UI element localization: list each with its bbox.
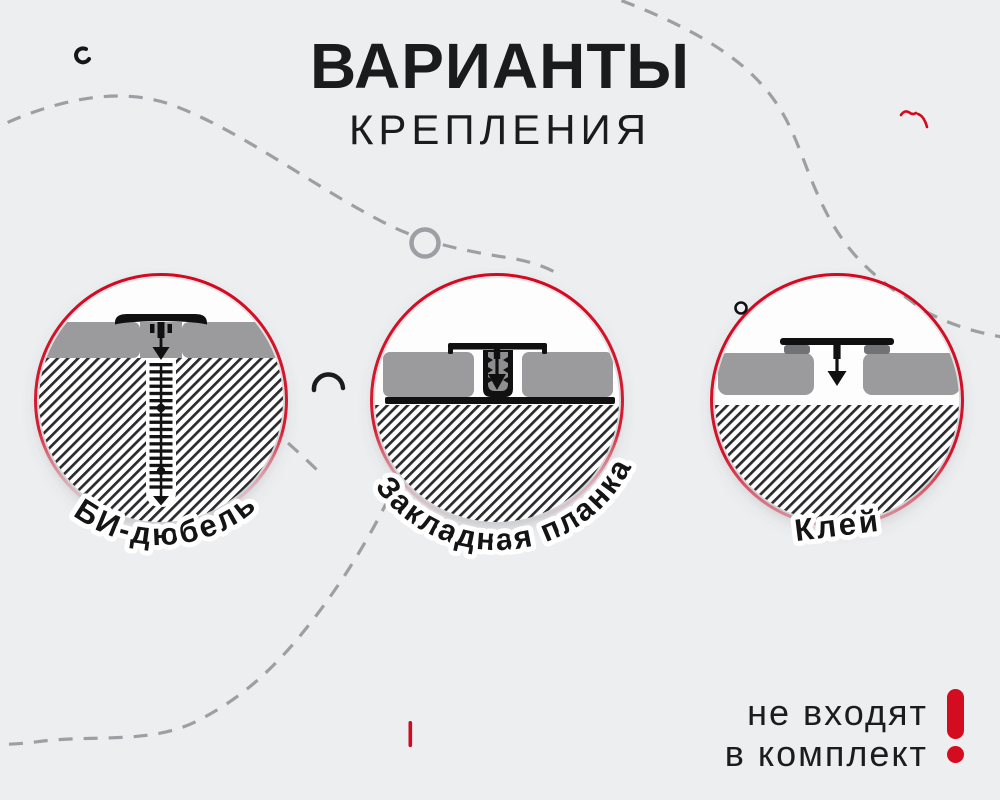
clip-hook-left bbox=[150, 324, 155, 333]
option-circle-bi-dowel: БИ-дюбель bbox=[1, 240, 321, 560]
footer-line1: не входят bbox=[725, 692, 928, 733]
title-line2: КРЕПЛЕНИЯ bbox=[0, 109, 1000, 151]
poster: { "page": { "background": "#edeef0" }, "… bbox=[0, 0, 1000, 800]
down-arrow-shaft bbox=[160, 336, 163, 348]
profile-cap bbox=[780, 338, 894, 345]
base-plate bbox=[385, 397, 615, 404]
exclamation-dot bbox=[947, 746, 964, 763]
dowel-pin-dot bbox=[157, 404, 165, 412]
glue-pad-right bbox=[864, 345, 890, 354]
floor-panel-left bbox=[383, 352, 474, 397]
footer-line2: в комплект bbox=[725, 733, 928, 774]
cap-hook-left bbox=[448, 348, 453, 354]
clip-hook-right bbox=[168, 324, 173, 333]
floor-panel-right bbox=[182, 322, 303, 358]
small-circle-doodle bbox=[736, 303, 747, 314]
profile-stem bbox=[833, 345, 840, 359]
floor-panel-left bbox=[19, 322, 140, 358]
floor-panel-right bbox=[522, 352, 613, 397]
glue-pad-left bbox=[784, 345, 810, 354]
title-line1: ВАРИАНТЫ bbox=[0, 34, 1000, 98]
page-title: ВАРИАНТЫ КРЕПЛЕНИЯ bbox=[0, 34, 1000, 151]
exclamation-bar bbox=[947, 689, 964, 739]
down-arrow-shaft bbox=[835, 357, 838, 373]
floor-panel-right bbox=[863, 353, 960, 395]
cap-hook-right bbox=[542, 348, 547, 354]
dowel-center-line bbox=[160, 363, 163, 496]
footer-note: не входят в комплект bbox=[725, 692, 928, 774]
red-tick bbox=[409, 721, 413, 747]
exclamation-icon bbox=[947, 689, 965, 763]
profile-stem bbox=[158, 322, 165, 338]
dowel-pin-dot bbox=[157, 467, 165, 475]
option-circle-mounting-plate: Закладная планка bbox=[337, 240, 657, 560]
down-arrow-shaft bbox=[495, 356, 498, 376]
option-circle-glue: Клей bbox=[677, 240, 997, 560]
floor-panel-left bbox=[718, 353, 814, 395]
profile-cap bbox=[448, 343, 547, 350]
